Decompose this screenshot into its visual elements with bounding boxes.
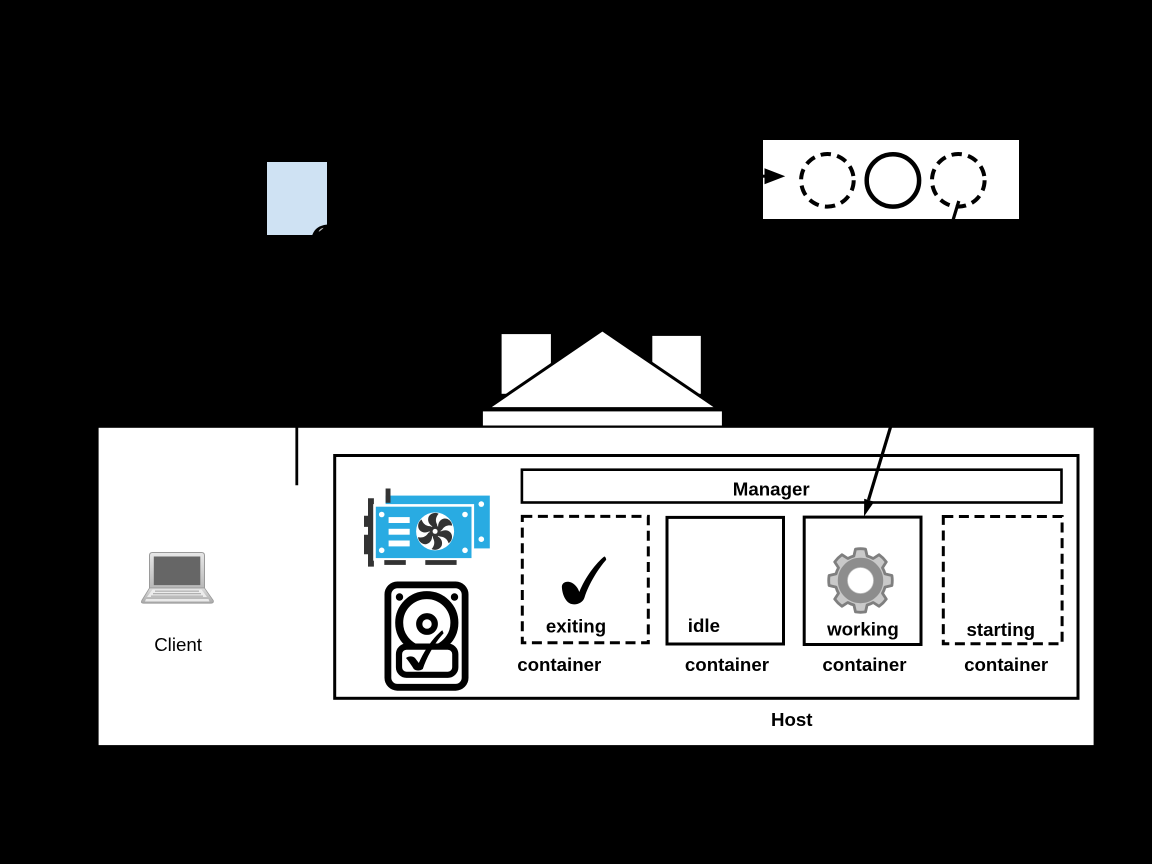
svg-text:container: container (964, 654, 1048, 675)
svg-text:container: container (822, 654, 906, 675)
svg-text:idle: idle (688, 615, 720, 636)
svg-text:container: container (685, 654, 769, 675)
svg-text:starting: starting (967, 619, 1036, 640)
svg-text:exiting: exiting (546, 616, 606, 637)
svg-text:Client: Client (154, 634, 203, 655)
svg-text:working: working (826, 619, 899, 640)
svg-text:Host: Host (771, 709, 813, 730)
svg-text:Manager: Manager (733, 479, 810, 500)
svg-text:container: container (517, 654, 601, 675)
